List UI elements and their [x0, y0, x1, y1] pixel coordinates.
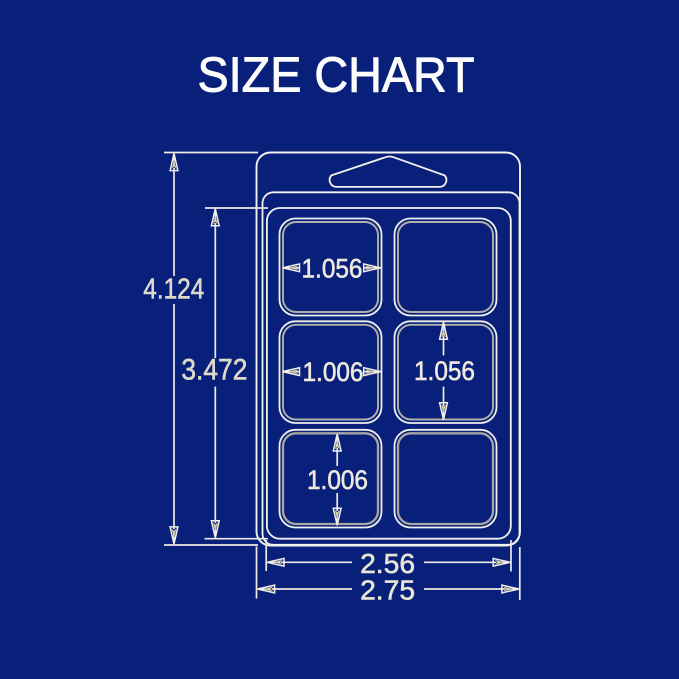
svg-text:2.75: 2.75 [360, 575, 415, 606]
svg-text:1.056: 1.056 [302, 253, 363, 283]
svg-text:1.056: 1.056 [414, 356, 475, 386]
svg-text:1.006: 1.006 [307, 465, 368, 495]
svg-text:3.472: 3.472 [181, 354, 247, 387]
svg-text:SIZE CHART: SIZE CHART [198, 48, 475, 103]
svg-text:4.124: 4.124 [143, 273, 204, 305]
svg-text:1.006: 1.006 [303, 357, 364, 387]
